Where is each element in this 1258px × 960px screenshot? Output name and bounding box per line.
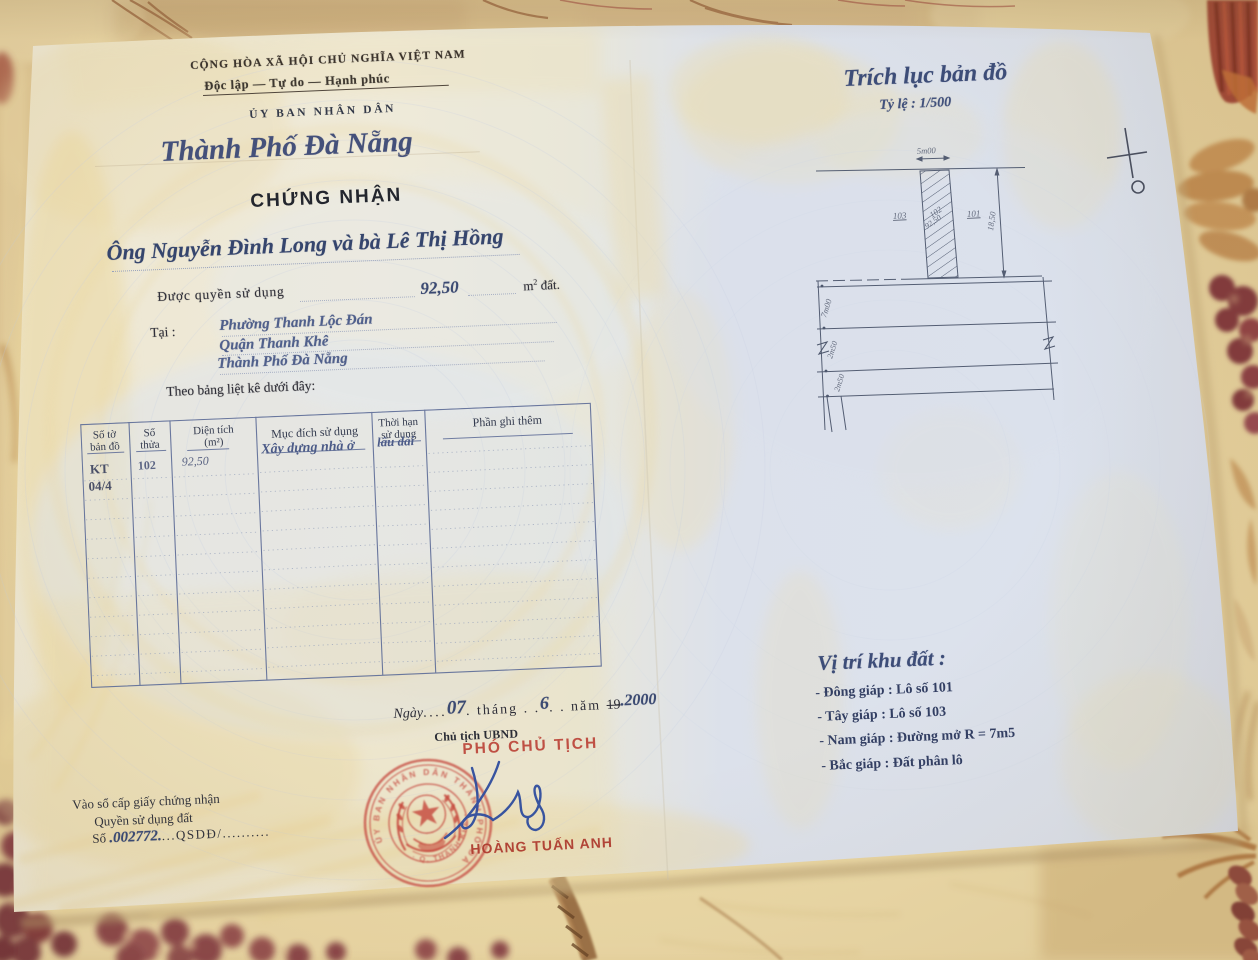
svg-text:2m50: 2m50 — [825, 340, 839, 360]
svg-text:Số: Số — [143, 427, 156, 439]
svg-text:101: 101 — [967, 208, 981, 219]
svg-text:5m00: 5m00 — [917, 145, 937, 156]
svg-text:Phần ghi thêm: Phần ghi thêm — [472, 413, 543, 430]
svg-text:102: 102 — [138, 458, 157, 473]
svg-text:92,50: 92,50 — [181, 454, 209, 469]
svg-text:18,50: 18,50 — [985, 210, 998, 231]
svg-text:bản đồ: bản đồ — [90, 440, 121, 453]
svg-text:Xây dựng nhà ở: Xây dựng nhà ở — [260, 438, 356, 457]
svg-text:04/4: 04/4 — [88, 478, 112, 494]
svg-text:KT: KT — [90, 461, 110, 477]
svg-text:Số tờ: Số tờ — [93, 428, 117, 441]
svg-text:Diện tích: Diện tích — [193, 424, 235, 438]
svg-text:2m50: 2m50 — [832, 373, 846, 393]
svg-text:7m00: 7m00 — [818, 297, 834, 319]
svg-text:lâu dài: lâu dài — [377, 433, 415, 450]
svg-text:(m²): (m²) — [204, 436, 224, 449]
svg-text:103: 103 — [893, 210, 908, 221]
svg-text:thửa: thửa — [140, 439, 160, 452]
